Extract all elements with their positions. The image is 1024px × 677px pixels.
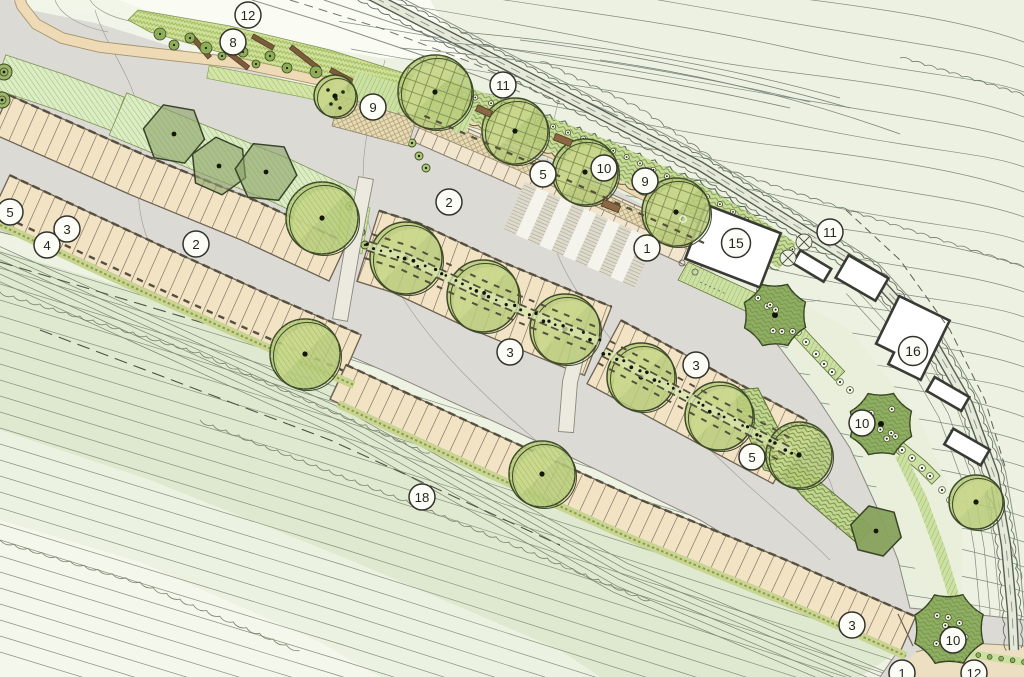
svg-text:8: 8 bbox=[229, 35, 236, 50]
svg-text:12: 12 bbox=[967, 666, 982, 677]
svg-text:3: 3 bbox=[692, 358, 699, 373]
svg-text:3: 3 bbox=[848, 618, 855, 633]
svg-text:16: 16 bbox=[905, 343, 921, 359]
svg-text:10: 10 bbox=[855, 416, 870, 431]
svg-text:2: 2 bbox=[192, 237, 199, 252]
svg-text:18: 18 bbox=[415, 490, 430, 505]
svg-text:11: 11 bbox=[496, 78, 510, 93]
svg-text:5: 5 bbox=[539, 167, 546, 182]
svg-text:10: 10 bbox=[597, 161, 612, 176]
svg-text:3: 3 bbox=[506, 345, 513, 360]
svg-text:5: 5 bbox=[6, 205, 13, 220]
svg-text:4: 4 bbox=[43, 238, 50, 253]
svg-text:15: 15 bbox=[728, 235, 744, 251]
svg-text:1: 1 bbox=[898, 666, 905, 677]
svg-text:9: 9 bbox=[641, 174, 648, 189]
svg-text:9: 9 bbox=[369, 100, 376, 115]
svg-text:3: 3 bbox=[63, 222, 70, 237]
svg-text:1: 1 bbox=[643, 241, 650, 256]
svg-text:11: 11 bbox=[823, 225, 837, 240]
svg-text:2: 2 bbox=[445, 195, 452, 210]
svg-text:12: 12 bbox=[241, 8, 256, 23]
svg-text:10: 10 bbox=[946, 633, 961, 648]
svg-text:5: 5 bbox=[748, 450, 755, 465]
